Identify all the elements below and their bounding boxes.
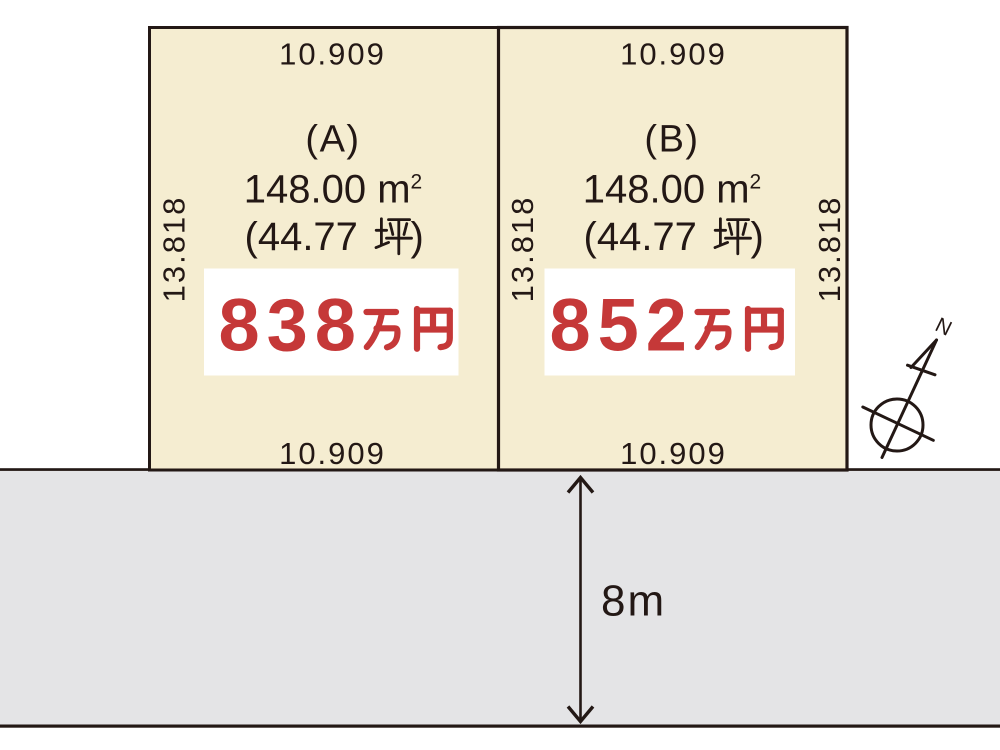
svg-text:13.818: 13.818 (812, 196, 847, 303)
svg-text:838: 838 (219, 284, 363, 367)
svg-text:10.909: 10.909 (279, 37, 386, 72)
svg-text:10.909: 10.909 (279, 436, 386, 471)
svg-text:): ) (411, 215, 424, 259)
svg-text:(B): (B) (644, 119, 699, 161)
svg-text:): ) (751, 215, 764, 259)
svg-text:8m: 8m (601, 577, 666, 626)
svg-text:13.818: 13.818 (157, 196, 192, 303)
svg-text:(44.77: (44.77 (584, 215, 697, 259)
svg-text:10.909: 10.909 (620, 436, 727, 471)
svg-text:852: 852 (550, 284, 694, 367)
svg-text:(A): (A) (305, 119, 360, 161)
svg-text:10.909: 10.909 (620, 37, 727, 72)
svg-text:(44.77: (44.77 (245, 215, 358, 259)
svg-text:148.00 m2: 148.00 m2 (583, 168, 761, 212)
svg-text:148.00 m2: 148.00 m2 (244, 168, 422, 212)
svg-text:13.818: 13.818 (505, 196, 540, 303)
